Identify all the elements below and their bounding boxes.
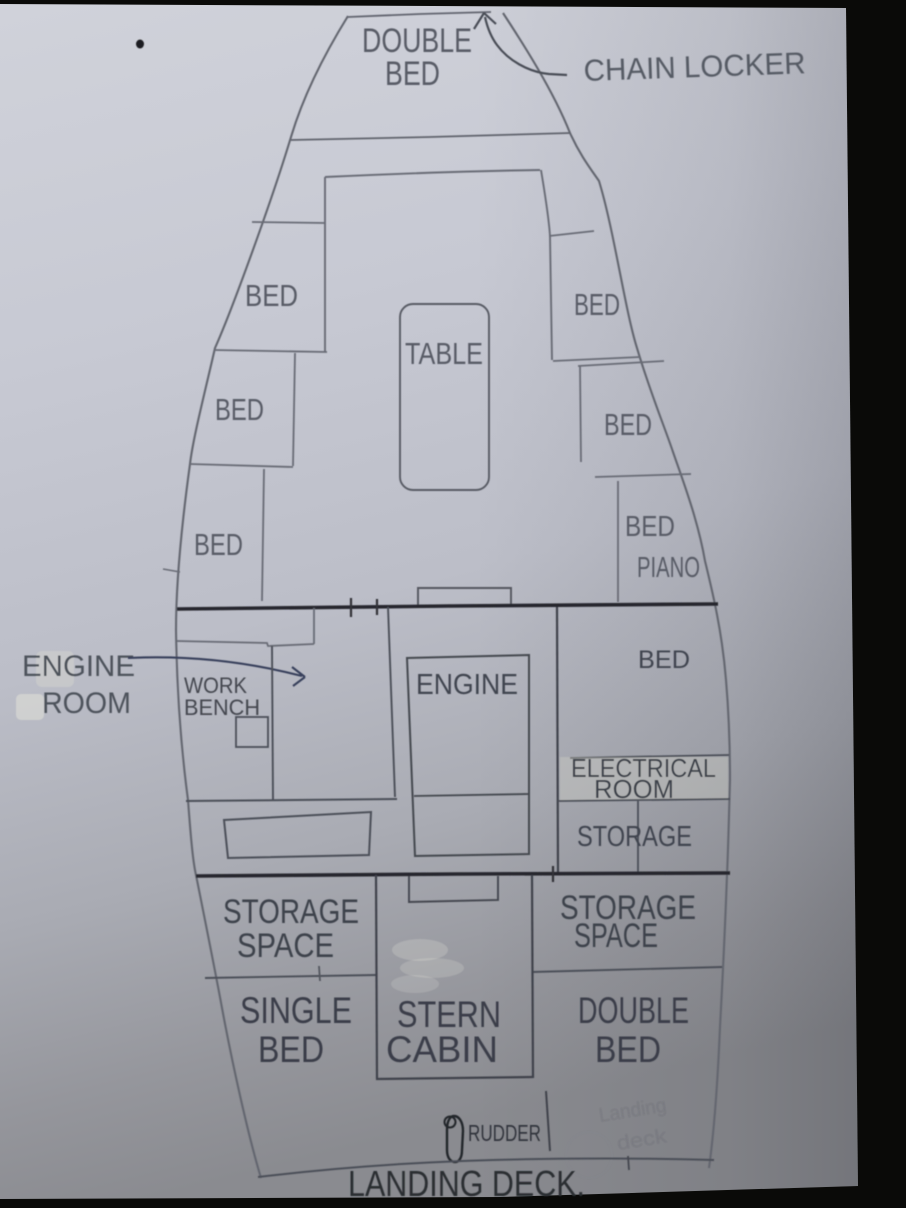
svg-text:BED: BED: [258, 1029, 324, 1070]
svg-text:PIANO: PIANO: [637, 552, 700, 584]
svg-text:ENGINE: ENGINE: [22, 650, 135, 683]
svg-text:BED: BED: [638, 646, 690, 674]
svg-text:RUDDER: RUDDER: [468, 1120, 541, 1146]
svg-text:BED: BED: [194, 527, 243, 562]
svg-text:CABIN: CABIN: [386, 1029, 498, 1070]
svg-text:BED: BED: [574, 287, 620, 322]
svg-text:BED: BED: [245, 278, 298, 313]
svg-text:BED: BED: [604, 407, 652, 442]
svg-text:STORAGE: STORAGE: [223, 893, 359, 931]
svg-text:DOUBLE: DOUBLE: [578, 990, 689, 1031]
svg-text:ENGINE: ENGINE: [416, 669, 518, 701]
svg-text:TABLE: TABLE: [405, 336, 483, 371]
svg-text:STORAGE: STORAGE: [577, 821, 692, 853]
svg-text:BED: BED: [215, 392, 264, 427]
svg-text:BED: BED: [625, 511, 675, 543]
svg-text:BED: BED: [385, 55, 440, 93]
svg-text:SPACE: SPACE: [237, 927, 334, 965]
svg-text:SINGLE: SINGLE: [240, 990, 352, 1031]
svg-text:SPACE: SPACE: [574, 917, 658, 955]
svg-text:LANDING DECK.: LANDING DECK.: [348, 1163, 585, 1204]
svg-text:BED: BED: [595, 1029, 661, 1070]
svg-text:ROOM: ROOM: [594, 774, 674, 804]
svg-text:ROOM: ROOM: [42, 687, 131, 720]
